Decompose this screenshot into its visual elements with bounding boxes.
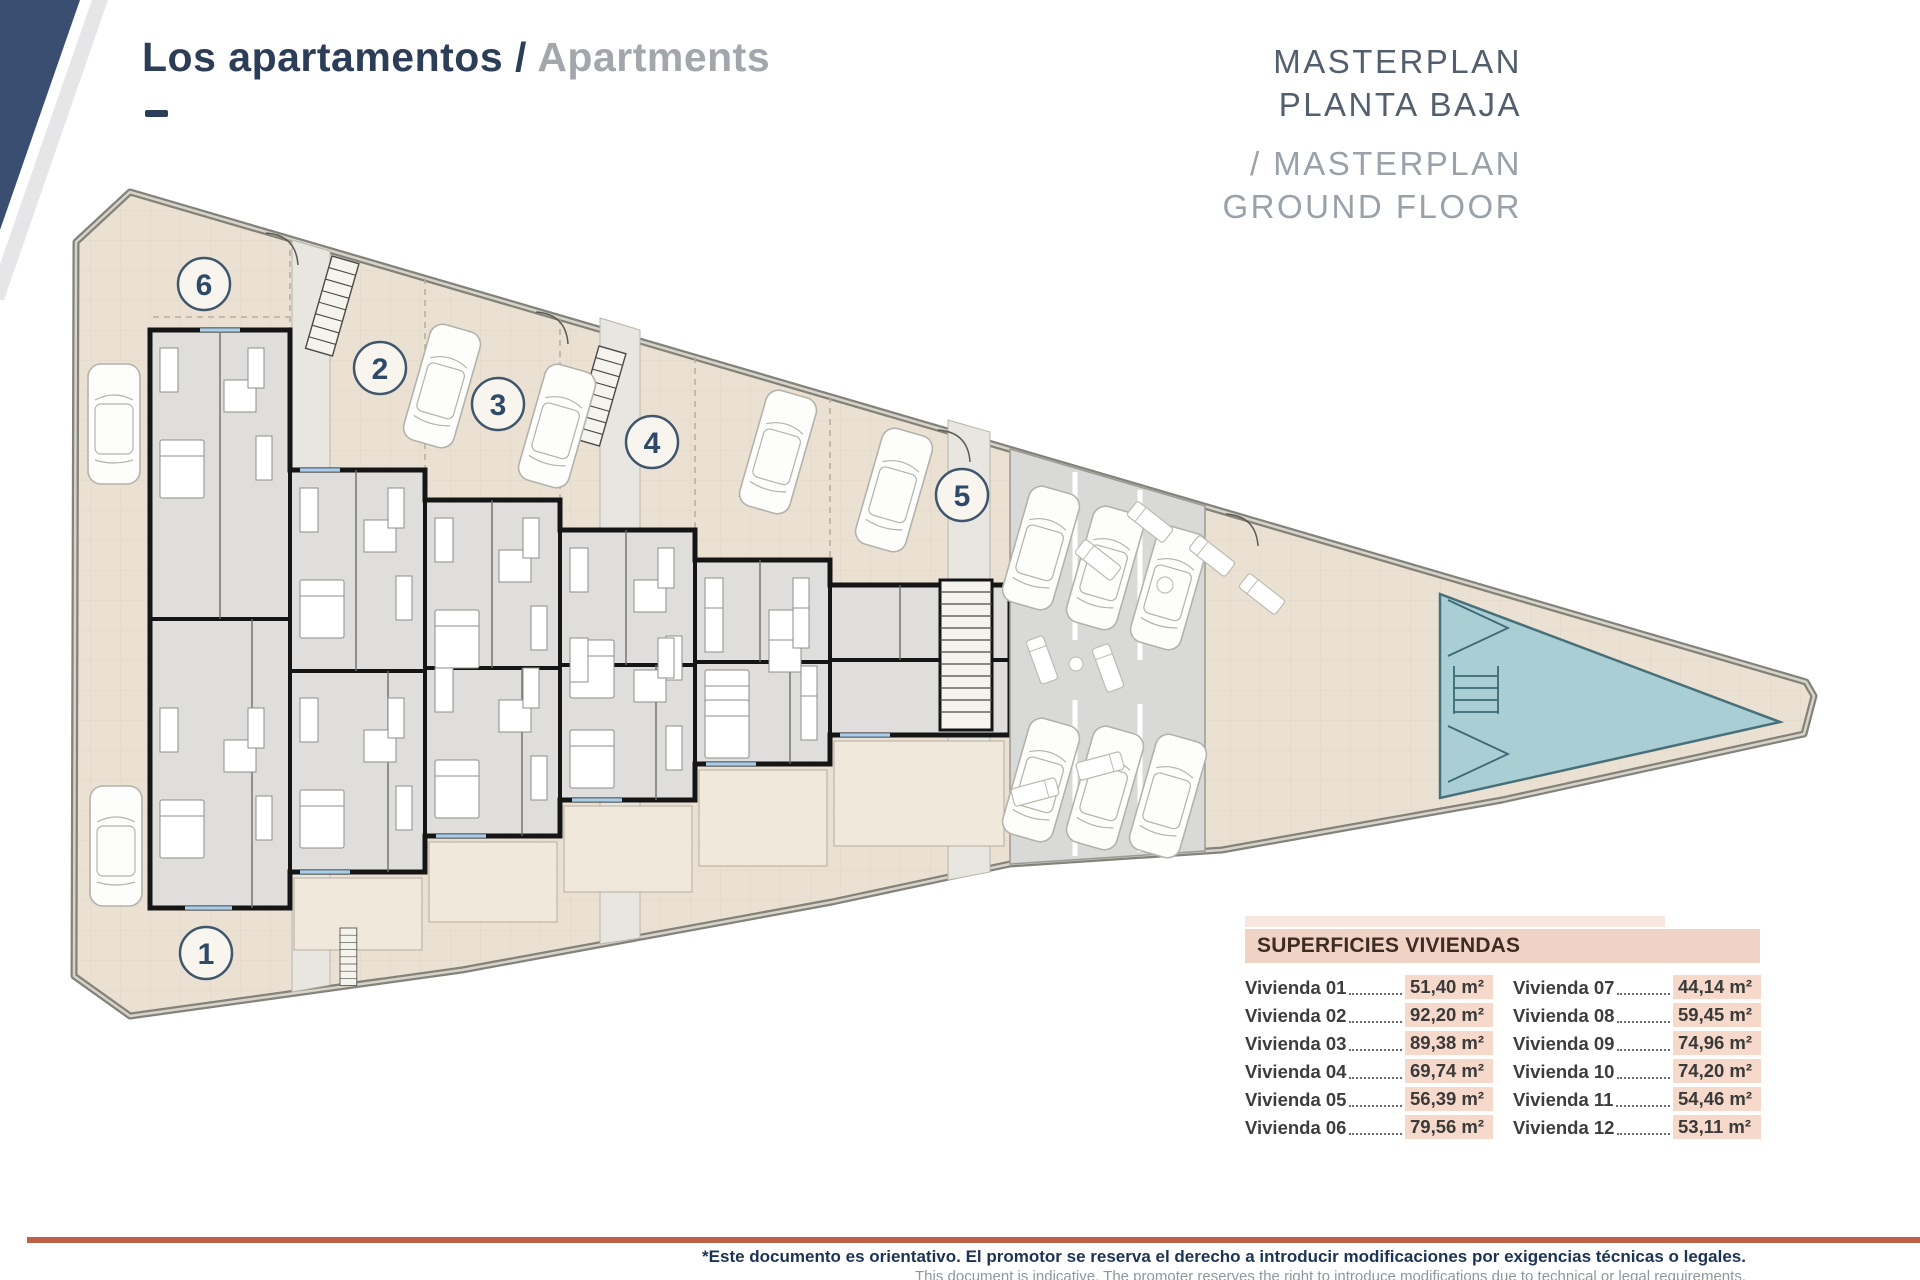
floorplan: 1 2 3 4 5 6 (40, 150, 1840, 1040)
area-row: Vivienda 0859,45 m² (1513, 1003, 1761, 1027)
areas-table-top-strip (1245, 916, 1665, 927)
car-icon (90, 786, 142, 906)
svg-text:2: 2 (372, 353, 389, 386)
area-row-leader (1617, 1077, 1670, 1079)
area-row-value: 74,20 m² (1673, 1059, 1761, 1083)
area-row-label: Vivienda 06 (1245, 1117, 1346, 1139)
area-row-label: Vivienda 08 (1513, 1005, 1614, 1027)
area-row-label: Vivienda 10 (1513, 1061, 1614, 1083)
area-row-leader (1349, 993, 1402, 995)
svg-text:3: 3 (490, 389, 507, 422)
central-stairs (940, 580, 992, 730)
area-row-value: 59,45 m² (1673, 1003, 1761, 1027)
area-row: Vivienda 1253,11 m² (1513, 1115, 1761, 1139)
area-row-leader (1349, 1133, 1402, 1135)
area-row-value: 53,11 m² (1673, 1115, 1761, 1139)
area-row-label: Vivienda 02 (1245, 1005, 1346, 1027)
area-row-value: 44,14 m² (1673, 975, 1761, 999)
area-row-value: 89,38 m² (1405, 1031, 1493, 1055)
title-separator: / (503, 34, 537, 80)
unit-marker: 6 (178, 258, 230, 310)
title-dash (145, 110, 168, 117)
page: Los apartamentos / Apartments MASTERPLAN… (0, 0, 1920, 1280)
unit-marker: 3 (472, 378, 524, 430)
area-row-value: 92,20 m² (1405, 1003, 1493, 1027)
area-row-leader (1617, 1049, 1670, 1051)
area-row: Vivienda 1154,46 m² (1513, 1087, 1761, 1111)
page-title: Los apartamentos / Apartments (142, 34, 770, 81)
masterplan-line-2: PLANTA BAJA (1222, 83, 1522, 126)
svg-text:4: 4 (644, 427, 661, 460)
areas-table-title: SUPERFICIES VIVIENDAS (1245, 934, 1520, 958)
area-row-value: 79,56 m² (1405, 1115, 1493, 1139)
area-row: Vivienda 0744,14 m² (1513, 975, 1761, 999)
area-row-label: Vivienda 04 (1245, 1061, 1346, 1083)
area-row-leader (1349, 1105, 1402, 1107)
area-row-leader (1349, 1021, 1402, 1023)
area-row-label: Vivienda 07 (1513, 977, 1614, 999)
area-row: Vivienda 0974,96 m² (1513, 1031, 1761, 1055)
area-row-value: 56,39 m² (1405, 1087, 1493, 1111)
area-row-leader (1349, 1049, 1402, 1051)
unit-marker: 2 (354, 342, 406, 394)
area-row: Vivienda 1074,20 m² (1513, 1059, 1761, 1083)
area-row-label: Vivienda 11 (1513, 1089, 1613, 1111)
area-row-leader (1616, 1105, 1670, 1107)
area-row-label: Vivienda 12 (1513, 1117, 1614, 1139)
svg-text:6: 6 (196, 269, 213, 302)
title-en: Apartments (537, 34, 770, 80)
area-row-value: 74,96 m² (1673, 1031, 1761, 1055)
unit-marker: 5 (936, 469, 988, 521)
area-row-value: 54,46 m² (1673, 1087, 1761, 1111)
car-icon (88, 364, 140, 484)
areas-table-column-left: Vivienda 0151,40 m²Vivienda 0292,20 m²Vi… (1245, 975, 1493, 1143)
disclaimer-es: *Este documento es orientativo. El promo… (702, 1247, 1746, 1267)
area-row: Vivienda 0556,39 m² (1245, 1087, 1493, 1111)
area-row: Vivienda 0679,56 m² (1245, 1115, 1493, 1139)
masterplan-line-1: MASTERPLAN (1222, 40, 1522, 83)
footer-accent-rule (27, 1237, 1920, 1243)
area-row: Vivienda 0389,38 m² (1245, 1031, 1493, 1055)
areas-table-header: SUPERFICIES VIVIENDAS (1245, 929, 1760, 963)
areas-table: SUPERFICIES VIVIENDAS Vivienda 0151,40 m… (1245, 916, 1767, 1143)
area-row-leader (1617, 993, 1670, 995)
area-row-leader (1617, 1021, 1670, 1023)
title-es: Los apartamentos (142, 34, 503, 80)
svg-text:1: 1 (198, 938, 215, 971)
svg-text:5: 5 (954, 480, 971, 513)
area-row-label: Vivienda 09 (1513, 1033, 1614, 1055)
area-row: Vivienda 0469,74 m² (1245, 1059, 1493, 1083)
area-row-label: Vivienda 03 (1245, 1033, 1346, 1055)
areas-table-column-right: Vivienda 0744,14 m²Vivienda 0859,45 m²Vi… (1513, 975, 1761, 1143)
disclaimer-en: This document is indicative. The promote… (702, 1267, 1746, 1280)
area-row-leader (1617, 1133, 1670, 1135)
area-row-leader (1349, 1077, 1402, 1079)
area-row: Vivienda 0151,40 m² (1245, 975, 1493, 999)
unit-marker: 4 (626, 416, 678, 468)
area-row-label: Vivienda 05 (1245, 1089, 1346, 1111)
area-row-value: 51,40 m² (1405, 975, 1493, 999)
footer-disclaimer: *Este documento es orientativo. El promo… (702, 1247, 1746, 1280)
area-row: Vivienda 0292,20 m² (1245, 1003, 1493, 1027)
area-row-label: Vivienda 01 (1245, 977, 1346, 999)
unit-marker: 1 (180, 927, 232, 979)
area-row-value: 69,74 m² (1405, 1059, 1493, 1083)
